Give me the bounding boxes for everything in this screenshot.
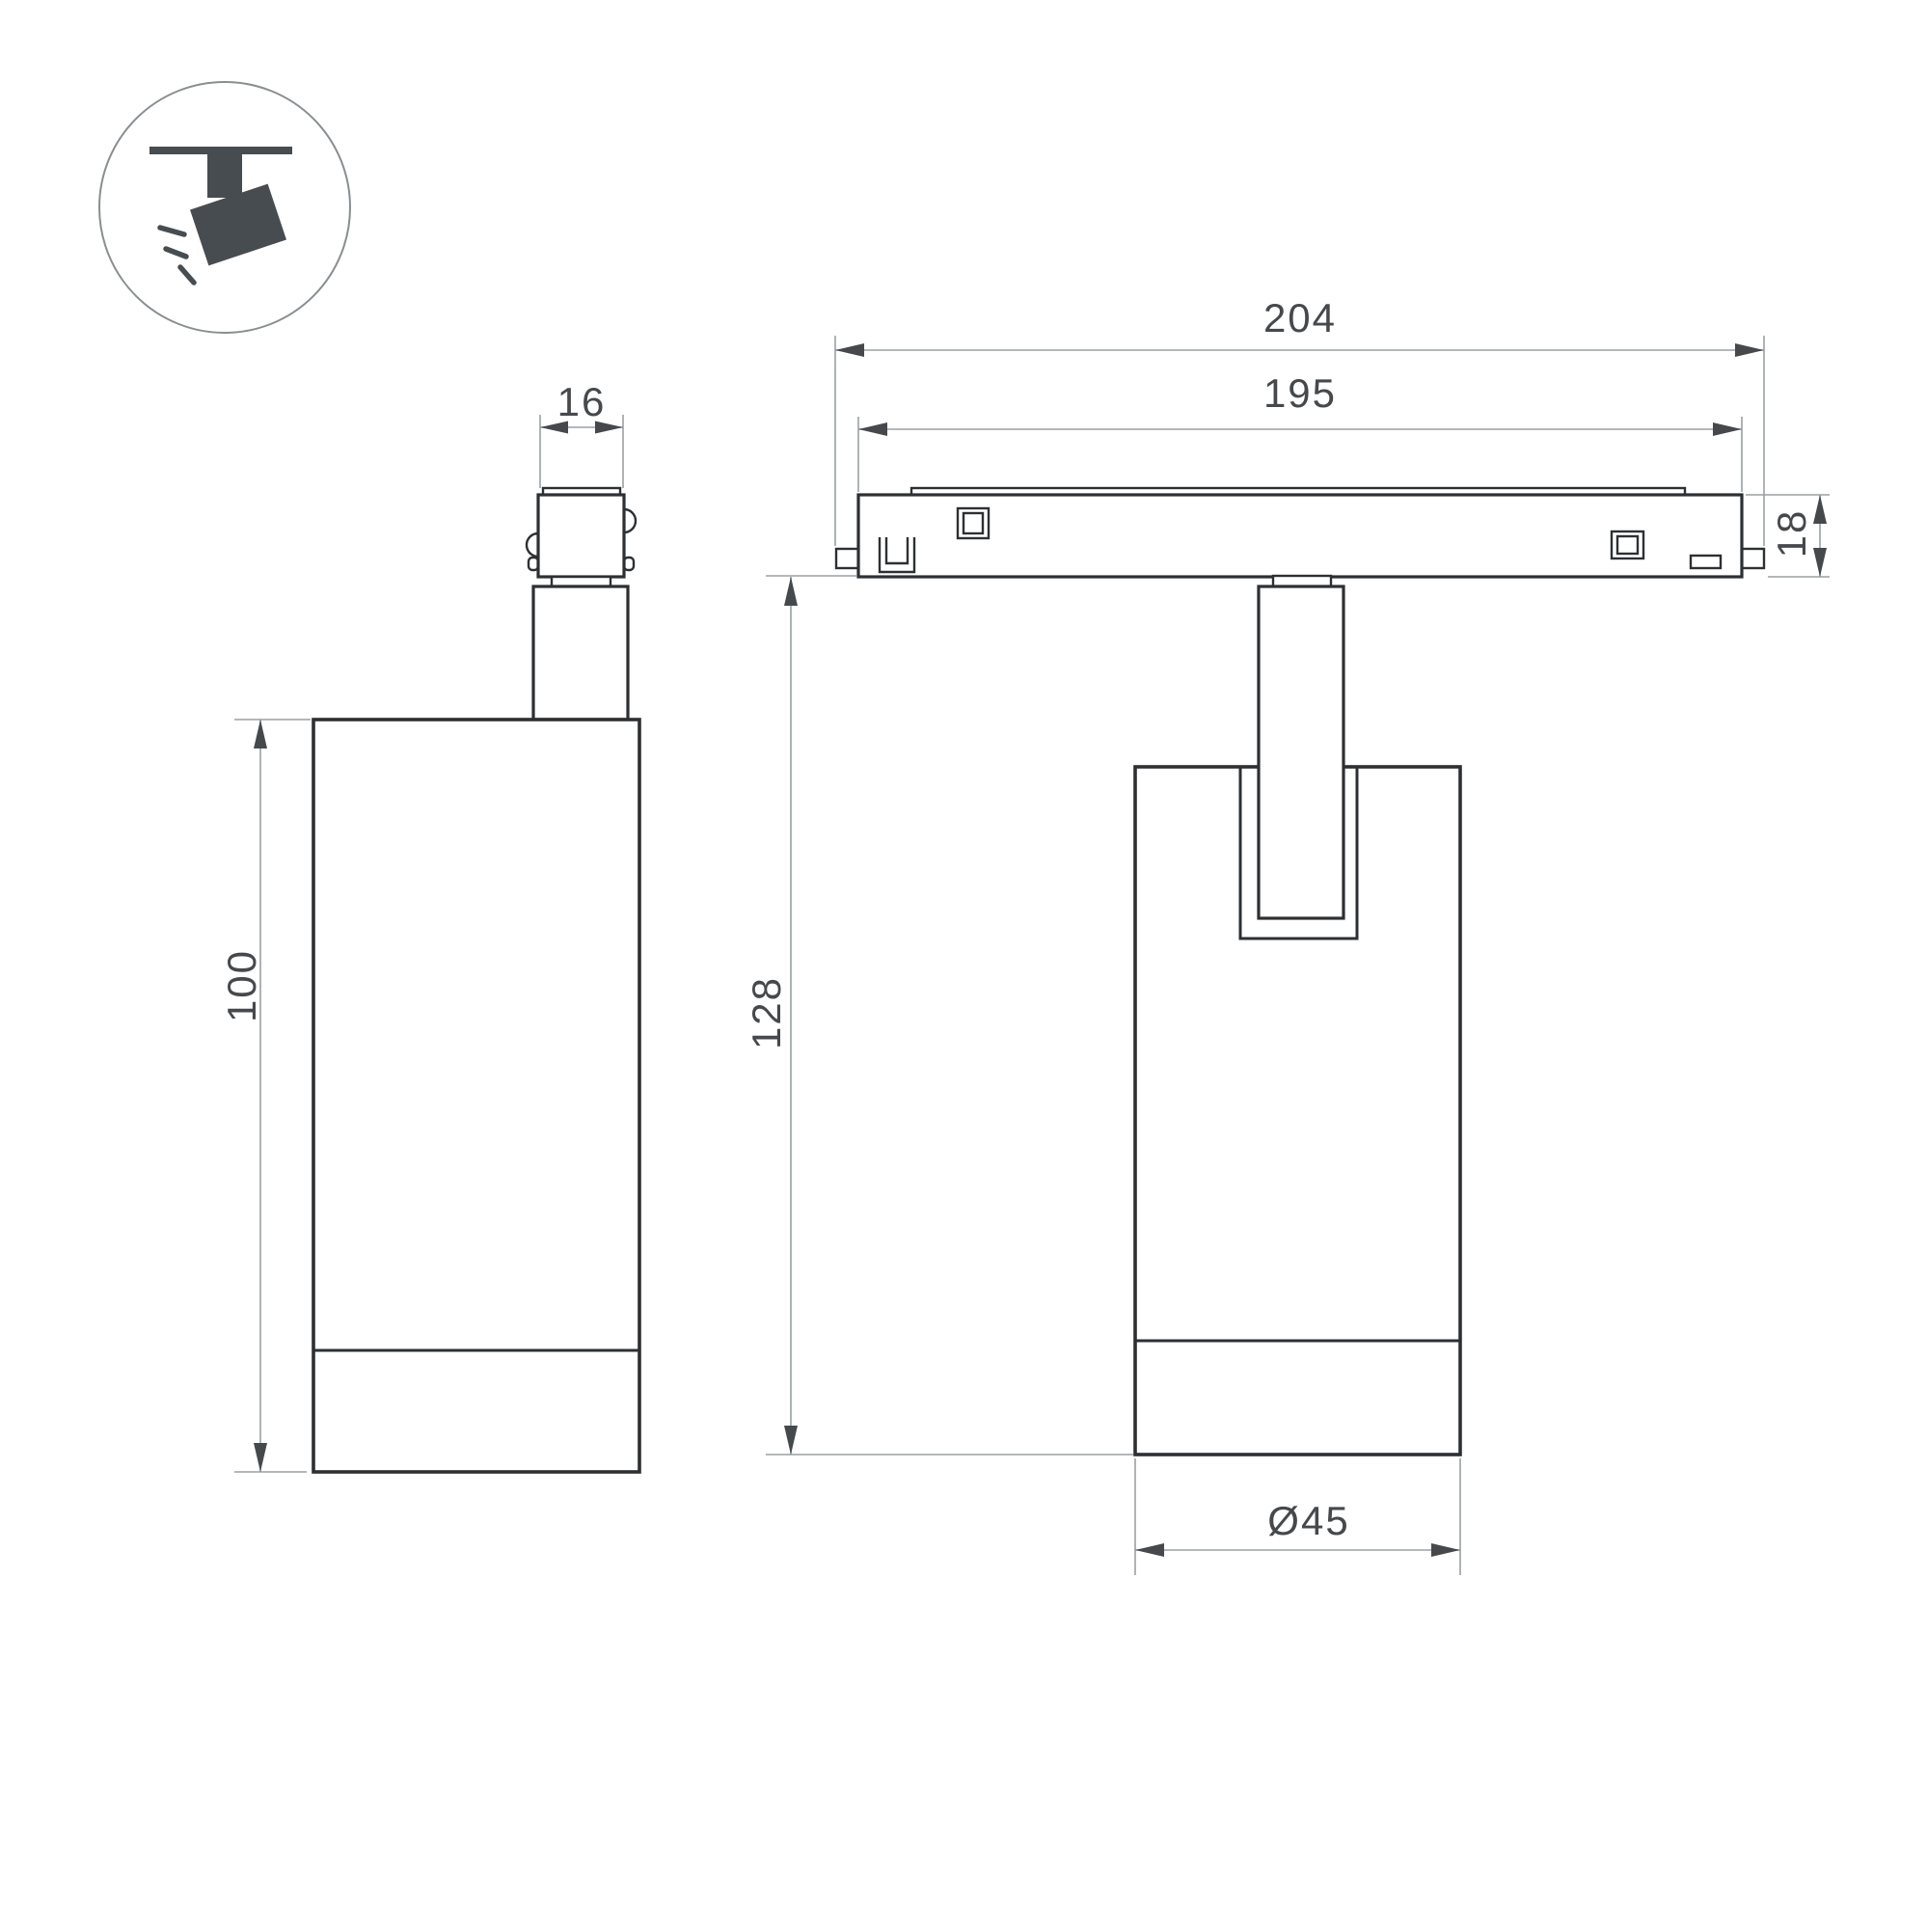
- dim-total-height-label: 128: [744, 976, 789, 1049]
- track-adapter-side: [527, 488, 636, 586]
- dim-adapter-width-group: 16: [540, 379, 623, 488]
- mount-type-icon: [99, 82, 350, 333]
- arrowhead: [254, 720, 267, 748]
- dim-adapter-width-label: 16: [557, 379, 607, 424]
- arrowhead: [835, 343, 864, 357]
- arrowhead: [858, 422, 887, 436]
- arrowhead: [1735, 343, 1764, 357]
- stem-side: [533, 586, 628, 720]
- lamp-body-side: [313, 720, 639, 1472]
- track-stub-icon: [207, 147, 242, 198]
- arrowhead: [1813, 548, 1827, 577]
- adapter-body: [538, 495, 624, 577]
- dim-body-height-group: 100: [219, 720, 311, 1472]
- dim-total-height-group: 128: [744, 576, 1133, 1455]
- arrowhead: [1431, 1543, 1460, 1557]
- arrowhead: [784, 1426, 798, 1455]
- arrowhead: [784, 577, 798, 606]
- track-window-inner: [963, 513, 983, 533]
- track-body: [858, 495, 1742, 577]
- dim-body-diameter-label: Ø45: [1267, 1498, 1349, 1543]
- track-slot: [1691, 556, 1721, 568]
- arrowhead: [1135, 1543, 1164, 1557]
- dim-track-inner-group: 195: [858, 370, 1742, 492]
- dim-track-overall-label: 204: [1263, 295, 1337, 340]
- stem-front: [1259, 586, 1343, 918]
- track-window-inner: [1617, 536, 1638, 554]
- adapter-screw-bulge: [624, 509, 636, 532]
- drawing-page: 16 100: [0, 0, 1927, 1927]
- adapter-screw-bulge: [527, 533, 538, 557]
- dim-body-diameter-group: Ø45: [1135, 1458, 1460, 1575]
- stem-connector: [1273, 576, 1331, 586]
- arrowhead: [1813, 495, 1827, 524]
- arrowhead: [254, 1443, 267, 1472]
- technical-drawing: 16 100: [0, 0, 1927, 1927]
- track-end-tab: [836, 549, 858, 568]
- side-view: 16 100: [219, 379, 639, 1472]
- dim-track-height-label: 18: [1769, 509, 1814, 558]
- front-view: 204 195: [744, 295, 1830, 1575]
- track-rail-front: [836, 488, 1764, 577]
- track-end-tab: [1742, 549, 1764, 568]
- dim-track-inner-label: 195: [1263, 370, 1337, 416]
- dim-body-height-label: 100: [219, 949, 264, 1022]
- arrowhead: [1713, 422, 1742, 436]
